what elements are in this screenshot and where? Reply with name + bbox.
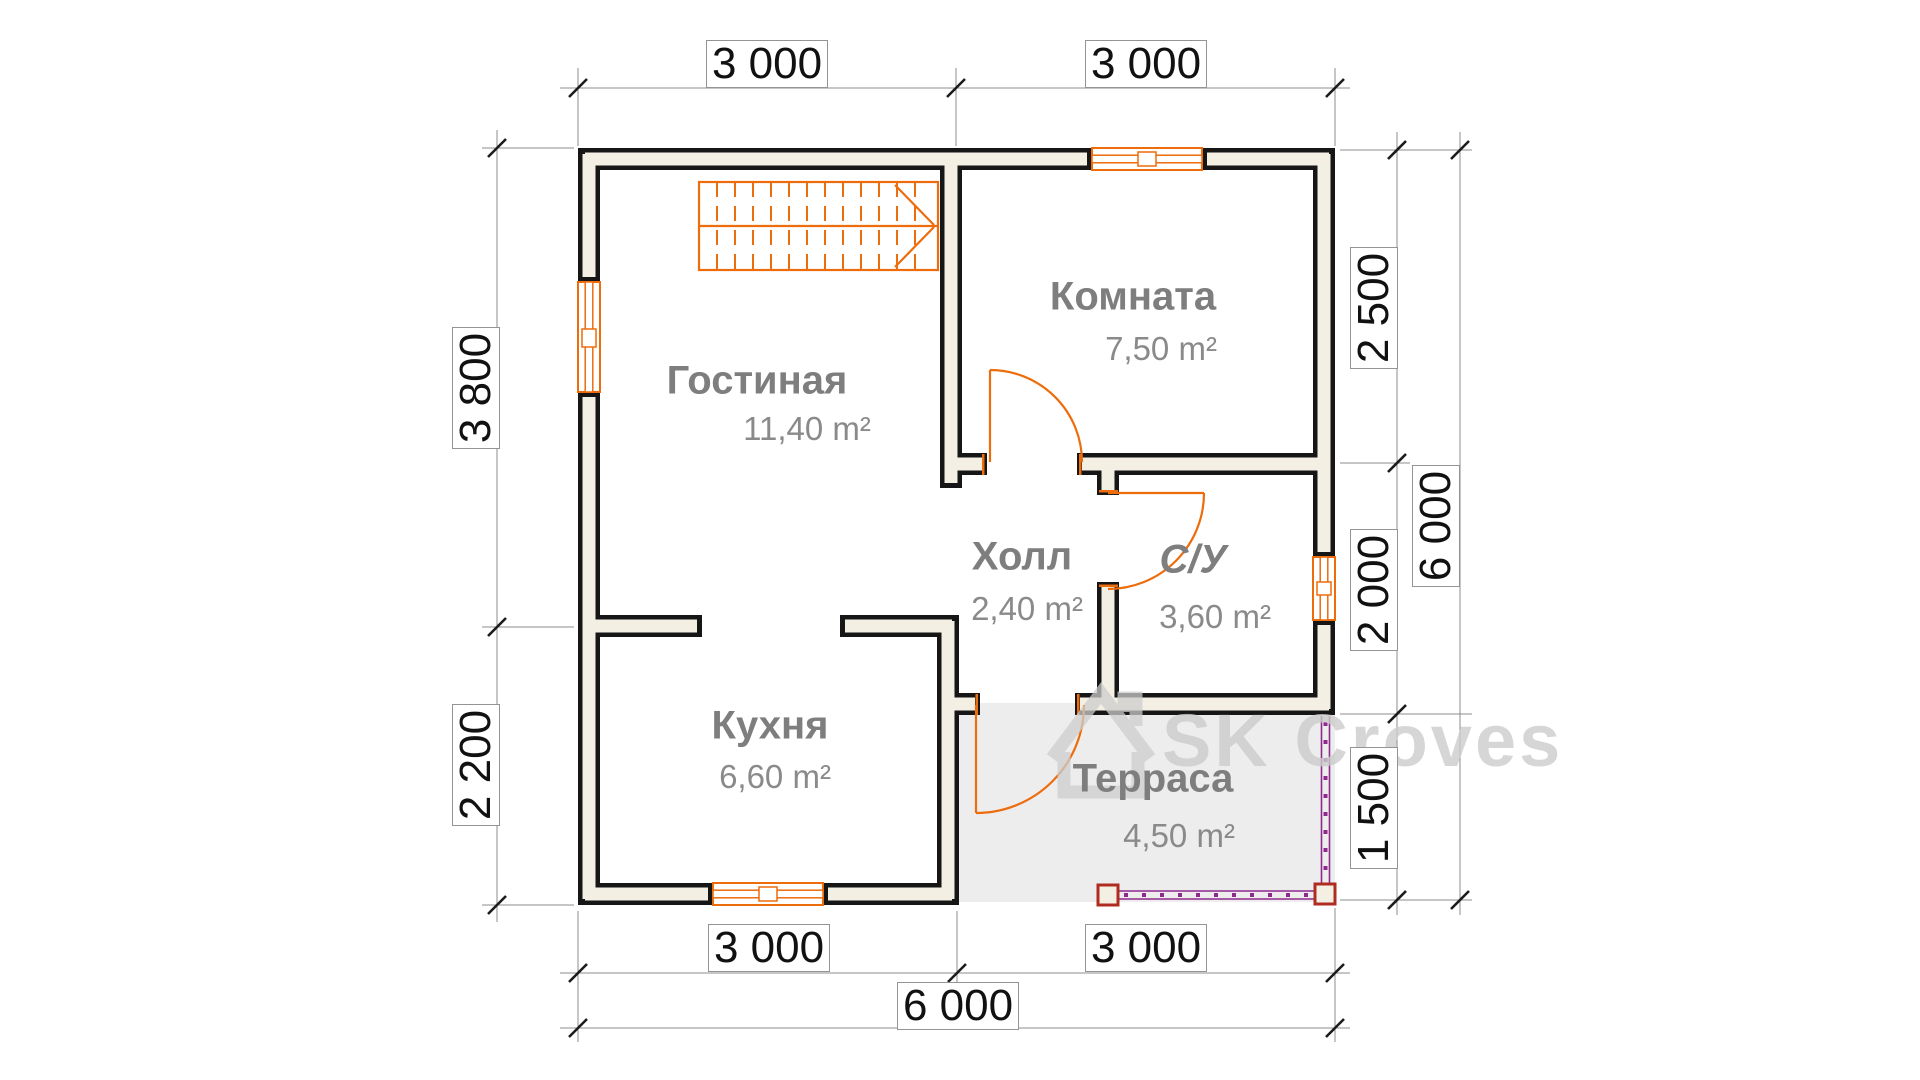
floor-plan-canvas: SK Croves 3 000 3 000 3 000 3 000 6 000 … xyxy=(0,0,1920,1080)
terrace-post-right xyxy=(1315,884,1335,904)
dim-bottom-right: 3 000 xyxy=(1085,924,1207,972)
dim-right-total: 6 000 xyxy=(1412,465,1460,587)
window-bedroom xyxy=(1092,148,1202,170)
window-kitchen xyxy=(713,883,823,905)
window-living-room xyxy=(578,282,600,392)
room-label-bedroom: Комната xyxy=(1050,275,1216,320)
room-label-kitchen: Кухня xyxy=(712,704,829,749)
dim-top-right: 3 000 xyxy=(1085,40,1207,88)
dim-right-upper: 2 500 xyxy=(1350,247,1398,369)
room-area-hall: 2,40 m² xyxy=(971,590,1083,628)
room-label-bathroom: С/У xyxy=(1159,538,1226,583)
room-area-bedroom: 7,50 m² xyxy=(1105,330,1217,368)
door-jambs xyxy=(976,454,1119,715)
room-label-terrace: Терраса xyxy=(1073,757,1234,802)
terrace-post-left xyxy=(1098,885,1118,905)
floor-plan-drawing xyxy=(0,0,1920,1080)
dim-left-upper: 3 800 xyxy=(452,327,500,449)
dim-right-lower: 1 500 xyxy=(1350,747,1398,869)
window-bathroom xyxy=(1313,557,1335,620)
dim-top-left: 3 000 xyxy=(706,40,828,88)
room-label-living-room: Гостиная xyxy=(667,359,848,404)
room-area-bathroom: 3,60 m² xyxy=(1159,598,1271,636)
dim-right-middle: 2 000 xyxy=(1350,529,1398,651)
room-area-terrace: 4,50 m² xyxy=(1123,817,1235,855)
dim-bottom-left: 3 000 xyxy=(708,924,830,972)
dim-bottom-total: 6 000 xyxy=(897,982,1019,1030)
dim-left-lower: 2 200 xyxy=(452,704,500,826)
door-bedroom xyxy=(990,370,1082,462)
staircase xyxy=(699,182,938,270)
room-area-kitchen: 6,60 m² xyxy=(719,758,831,796)
room-area-living-room: 11,40 m² xyxy=(743,410,871,448)
room-label-hall: Холл xyxy=(972,535,1072,580)
